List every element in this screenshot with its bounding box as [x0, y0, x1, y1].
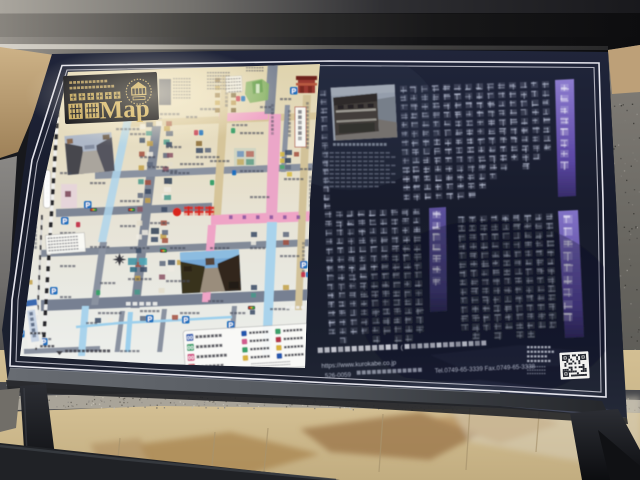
- svg-text:526-0059: 526-0059: [325, 372, 352, 380]
- svg-text:P: P: [85, 202, 90, 209]
- svg-text:P: P: [183, 317, 188, 324]
- svg-text:P: P: [291, 88, 296, 95]
- svg-text:P: P: [51, 288, 56, 295]
- svg-text:P: P: [62, 218, 67, 225]
- svg-text:00: 00: [187, 345, 193, 351]
- svg-text:00: 00: [188, 355, 194, 361]
- svg-text:00: 00: [187, 335, 193, 341]
- svg-text:P: P: [301, 262, 306, 269]
- svg-text:P: P: [147, 316, 152, 323]
